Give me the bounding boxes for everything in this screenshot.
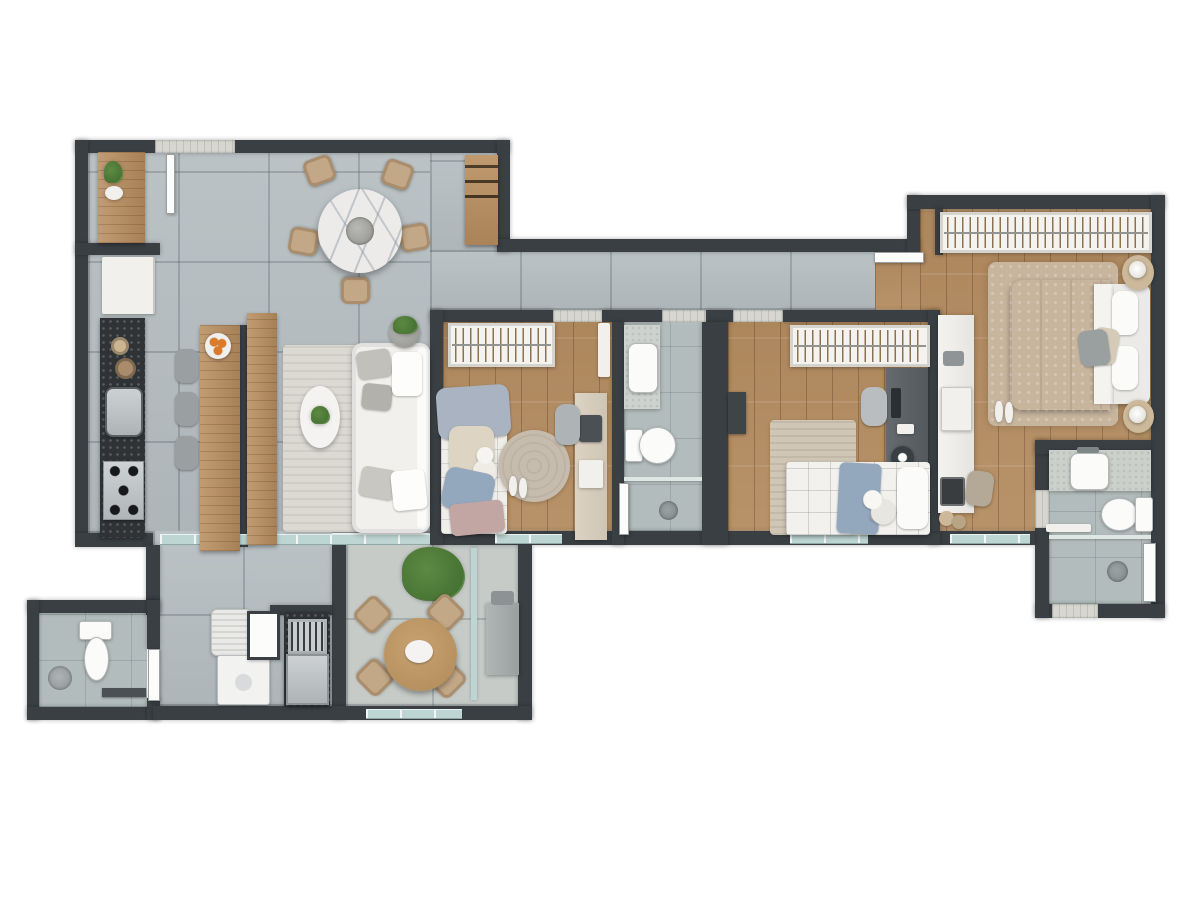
master-bath-drain	[1107, 561, 1128, 582]
bathroom-sink	[628, 343, 658, 393]
plush-toy	[860, 487, 896, 529]
master-bath-towel-bar	[1046, 524, 1091, 532]
bedroom-2-keyboard	[897, 424, 914, 434]
wall	[147, 600, 160, 649]
master-bath-niche	[1143, 543, 1156, 602]
dining-chair	[287, 226, 320, 258]
wall	[497, 239, 920, 252]
bar-stool	[175, 436, 198, 470]
pantry-plant	[104, 161, 122, 183]
wall	[702, 322, 728, 545]
bedroom-1-laptop	[579, 415, 602, 442]
master-bath-toilet-bowl	[1101, 498, 1138, 531]
master-table-lamp	[1129, 406, 1146, 423]
master-desk-decor	[943, 351, 964, 366]
bedroom-1-window	[495, 534, 562, 544]
bedroom-2-window	[790, 534, 868, 544]
master-bath-door-threshold	[1035, 490, 1049, 528]
master-pillow	[1112, 291, 1138, 335]
wc-shower-head	[48, 666, 72, 690]
master-slippers	[1005, 402, 1013, 423]
bedroom-2-wardrobe	[790, 325, 930, 367]
bedroom-1-wardrobe	[448, 323, 555, 367]
coffee-table-plant	[311, 406, 329, 424]
prep-bowl	[115, 358, 136, 379]
wall	[153, 706, 532, 720]
laundry-basket	[211, 609, 252, 656]
wc-towel-bar	[102, 688, 146, 697]
bar-stool	[175, 392, 198, 426]
bedroom-1-door-threshold	[553, 310, 602, 322]
wall	[332, 545, 346, 720]
bedroom-1-books	[579, 460, 603, 488]
entry-door-threshold	[155, 140, 235, 153]
bedroom-2-door-threshold	[733, 310, 783, 322]
service-panel	[247, 611, 280, 660]
master-bedroom-window	[950, 534, 1030, 544]
kitchen-island	[200, 325, 240, 551]
bedroom-1-blanket-pink	[448, 499, 505, 536]
bedroom-2-wall-shelf	[728, 392, 746, 434]
master-entry-door	[874, 252, 924, 263]
master-desk-trinket	[952, 515, 966, 529]
living-plant	[393, 316, 417, 334]
wall	[27, 600, 39, 720]
master-slippers	[995, 401, 1003, 422]
balcony-glass-partition	[471, 548, 477, 700]
sofa-cushion	[392, 352, 422, 396]
wc-door	[148, 649, 160, 701]
wall	[518, 545, 532, 720]
shower-drain	[659, 501, 678, 520]
bathroom-toilet-bowl	[639, 427, 676, 464]
sofa-cushion	[390, 468, 428, 511]
prep-bowl	[111, 337, 129, 355]
tv-sideboard	[247, 313, 277, 545]
built-in-oven	[286, 654, 329, 705]
balcony-plant	[402, 547, 464, 601]
dining-chair	[341, 277, 370, 304]
bbq-grill	[288, 619, 327, 654]
bedroom-2-desk-chair	[861, 387, 887, 426]
sofa-cushion	[361, 383, 394, 412]
wall	[907, 195, 1165, 209]
slippers	[509, 476, 517, 496]
sofa-cushion	[355, 348, 393, 380]
pantry-door	[166, 154, 175, 214]
master-knit-pillow	[1077, 328, 1112, 368]
bedroom-1-wall-shelf	[598, 323, 610, 377]
wall	[27, 707, 160, 720]
master-laptop	[941, 387, 972, 431]
master-bath-bottom-threshold	[1052, 604, 1098, 618]
wall	[27, 600, 160, 613]
bathroom-door-threshold	[662, 310, 706, 322]
wall	[497, 140, 510, 252]
wc-toilet-bowl	[84, 637, 109, 681]
bathroom-towel-panel	[619, 483, 629, 535]
kitchen-sink	[105, 387, 143, 437]
balcony-cabinet	[486, 603, 519, 675]
slippers	[519, 478, 527, 498]
wall	[75, 140, 88, 533]
master-bath-faucet	[1077, 447, 1099, 453]
master-stool	[964, 469, 996, 507]
wall	[75, 243, 160, 255]
balcony-table-plate	[405, 640, 433, 663]
wall	[430, 310, 553, 322]
master-bath-toilet-tank	[1135, 497, 1153, 532]
master-table-lamp	[1129, 261, 1146, 278]
dining-table-center-tray	[346, 217, 374, 245]
floor-hallway	[430, 252, 875, 310]
master-keyboard	[940, 477, 965, 506]
shower-glass-line	[624, 477, 702, 481]
refrigerator	[102, 257, 155, 314]
fruit-plate	[205, 333, 231, 359]
wall	[783, 310, 940, 322]
wall	[1035, 528, 1049, 618]
wall	[706, 310, 733, 322]
gas-cooktop	[103, 461, 144, 520]
floor-plan	[0, 0, 1200, 900]
bedroom-2-monitor	[891, 388, 901, 418]
wall	[602, 310, 662, 322]
washing-machine	[217, 655, 270, 705]
pantry-faucet	[105, 186, 123, 200]
bedroom-2-pillow	[897, 467, 928, 529]
balcony-window	[366, 709, 462, 719]
master-bath-glass-partition	[1049, 535, 1151, 539]
balcony-cabinet-item	[491, 591, 514, 605]
master-bath-sink	[1070, 453, 1109, 490]
bar-shelf	[465, 155, 498, 245]
bar-stool	[175, 349, 198, 383]
dining-chair	[398, 222, 431, 254]
master-wardrobe	[940, 212, 1152, 253]
bedroom-1-desk-chair	[555, 404, 580, 445]
